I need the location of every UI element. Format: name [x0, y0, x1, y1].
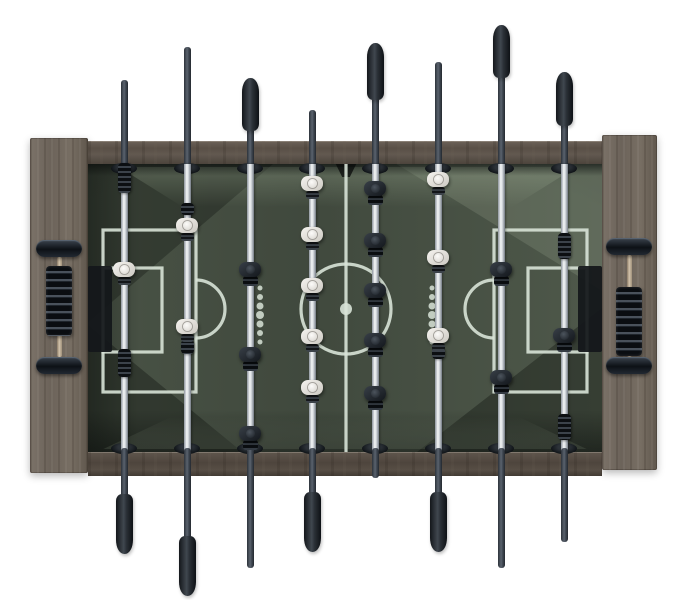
score-counter-left-bracket-bottom — [36, 357, 82, 374]
score-counter-left-bead-stack — [46, 266, 72, 336]
score-counters-layer — [0, 0, 692, 600]
score-counter-right-bracket-bottom — [606, 357, 652, 374]
foosball-table-photo — [0, 0, 692, 600]
score-counter-right-bead-stack — [616, 287, 642, 356]
score-counter-right-bracket-top — [606, 238, 652, 255]
score-counter-left-bracket-top — [36, 240, 82, 257]
